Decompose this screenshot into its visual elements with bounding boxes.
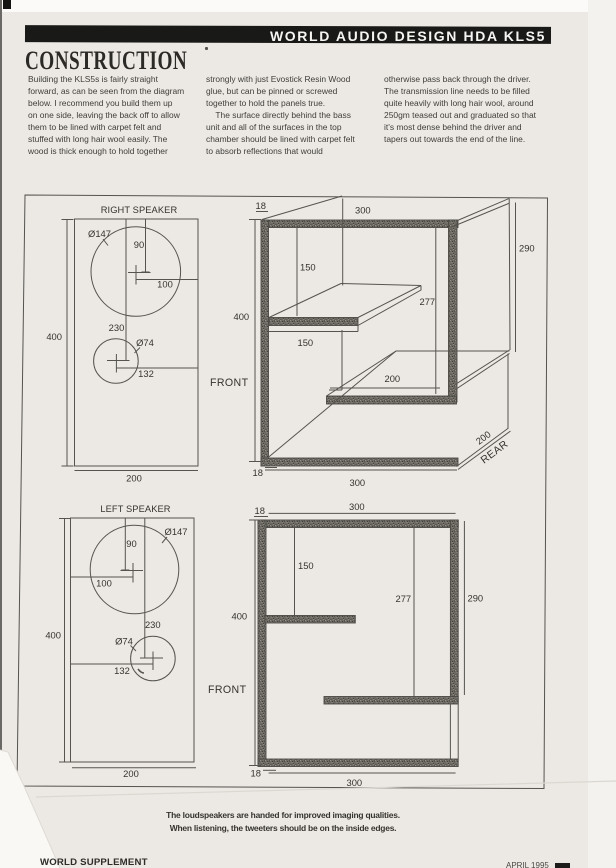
svg-text:132: 132 [114, 665, 130, 676]
svg-text:290: 290 [519, 243, 535, 254]
svg-text:200: 200 [474, 428, 493, 446]
svg-text:150: 150 [300, 262, 316, 273]
svg-text:400: 400 [45, 630, 61, 641]
svg-text:Ø147: Ø147 [165, 526, 188, 537]
svg-text:FRONT: FRONT [208, 684, 247, 696]
svg-text:Ø147: Ø147 [88, 228, 111, 239]
svg-text:FRONT: FRONT [210, 377, 249, 389]
svg-text:400: 400 [232, 611, 248, 622]
svg-text:300: 300 [350, 477, 366, 488]
svg-text:LEFT SPEAKER: LEFT SPEAKER [100, 504, 170, 514]
svg-text:90: 90 [134, 239, 144, 250]
svg-text:18: 18 [253, 467, 263, 478]
svg-text:100: 100 [96, 578, 112, 589]
svg-text:Ø74: Ø74 [115, 636, 133, 647]
svg-text:400: 400 [234, 311, 250, 322]
svg-text:400: 400 [46, 331, 62, 342]
svg-text:200: 200 [385, 373, 401, 384]
svg-text:18: 18 [251, 768, 261, 779]
svg-text:150: 150 [298, 560, 314, 571]
svg-text:277: 277 [420, 296, 436, 307]
svg-text:200: 200 [126, 473, 142, 484]
svg-text:18: 18 [255, 505, 265, 516]
svg-text:150: 150 [298, 337, 314, 348]
svg-text:230: 230 [109, 322, 125, 333]
svg-text:RIGHT SPEAKER: RIGHT SPEAKER [101, 205, 178, 215]
svg-text:300: 300 [355, 205, 371, 216]
svg-text:100: 100 [157, 279, 173, 290]
svg-text:230: 230 [145, 619, 161, 630]
svg-text:290: 290 [468, 593, 484, 604]
svg-text:18: 18 [256, 200, 266, 211]
svg-text:277: 277 [396, 593, 412, 604]
svg-text:200: 200 [123, 768, 139, 779]
svg-text:132: 132 [138, 368, 154, 379]
svg-text:90: 90 [126, 538, 136, 549]
svg-text:Ø74: Ø74 [136, 337, 154, 348]
svg-text:300: 300 [349, 501, 365, 512]
